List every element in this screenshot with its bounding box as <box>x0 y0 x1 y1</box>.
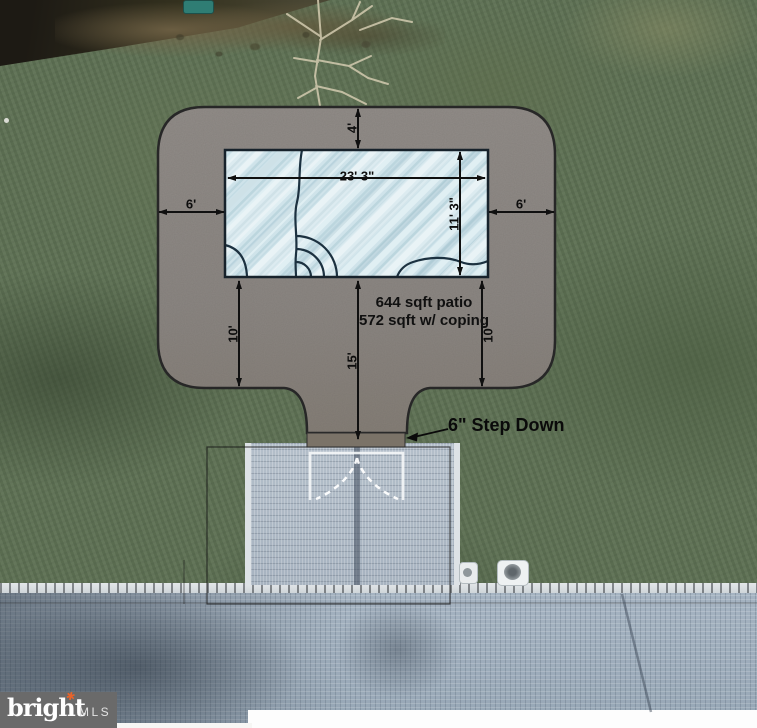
dirt-speckles <box>120 18 420 66</box>
ac-unit <box>497 560 529 586</box>
ac-fan-icon <box>504 564 521 580</box>
dimension-label-lower-left: 10' <box>226 325 241 343</box>
area-note-line2: 572 sqft w/ coping <box>359 312 489 330</box>
dimension-label-right-margin: 6' <box>516 197 526 212</box>
area-note: 644 sqft patio 572 sqft w/ coping <box>359 294 489 330</box>
ac-fan-icon <box>463 568 472 577</box>
dimension-label-center-run: 15' <box>345 352 360 370</box>
roof-shadow <box>330 600 480 710</box>
step-down-note: 6" Step Down <box>448 415 565 436</box>
ac-unit <box>459 562 478 584</box>
brightmls-watermark: bright ✱ MLS <box>0 692 117 728</box>
plan-canvas: 4' 23' 3" 11' 3" 6' 6' 10' 10' 15' 644 s… <box>0 0 757 728</box>
dimension-label-left-margin: 6' <box>186 197 196 212</box>
parked-car <box>183 0 214 14</box>
yard-object <box>4 118 9 123</box>
area-note-line1: 644 sqft patio <box>359 294 489 312</box>
mls-text: MLS <box>79 705 111 719</box>
sunroom-roof <box>245 443 460 585</box>
dimension-label-pool-depth: 11' 3" <box>447 197 462 231</box>
dimension-label-pool-width: 23' 3" <box>340 169 375 184</box>
driveway-strip <box>248 710 757 728</box>
dimension-label-top-offset: 4' <box>345 123 360 133</box>
driveway-strip <box>117 723 252 728</box>
